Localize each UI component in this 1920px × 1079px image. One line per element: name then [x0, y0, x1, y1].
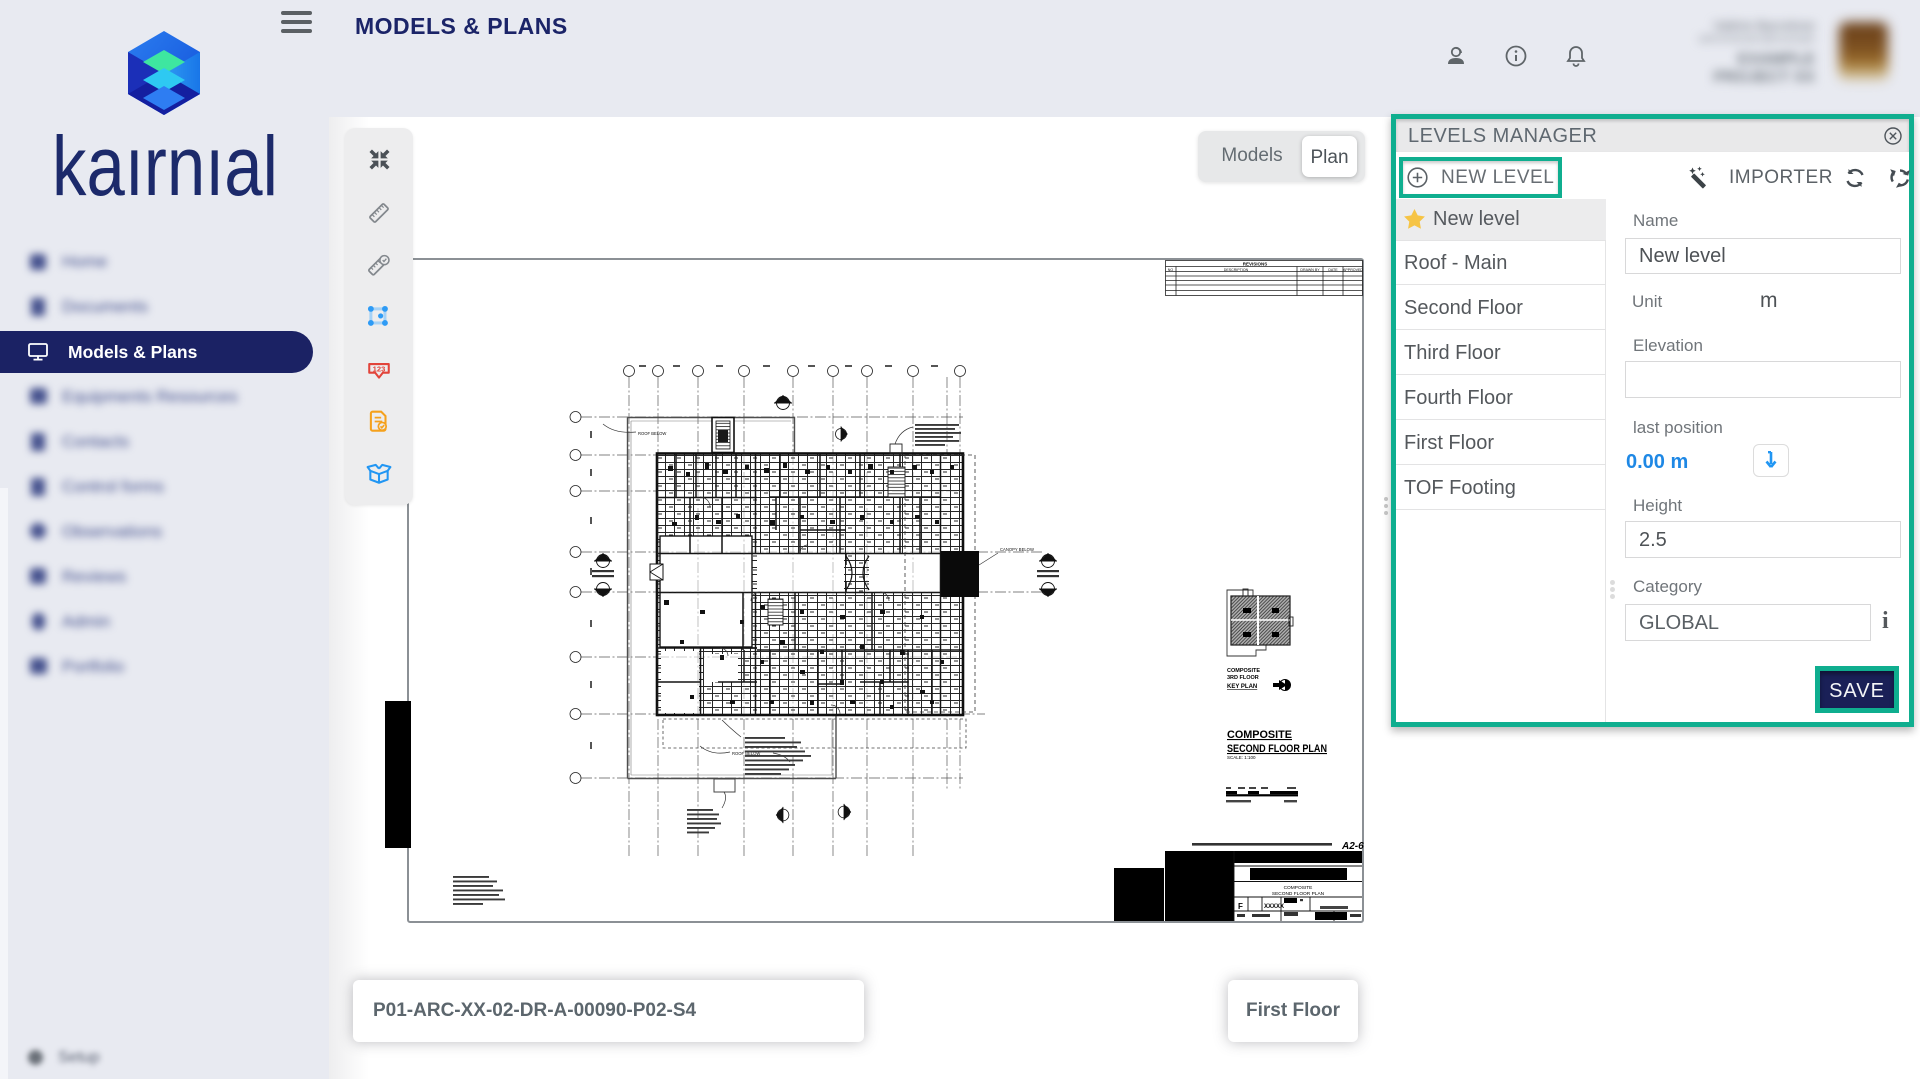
svg-text:XXXXX: XXXXX [1264, 904, 1284, 910]
svg-text:123: 123 [373, 365, 386, 374]
svg-text:SECOND FLOOR PLAN: SECOND FLOOR PLAN [1272, 891, 1325, 897]
svg-text:CANOPY BELOW: CANOPY BELOW [1000, 547, 1034, 552]
svg-text:REVISIONS: REVISIONS [1243, 262, 1268, 267]
svg-text:3RD FLOOR: 3RD FLOOR [1227, 675, 1259, 681]
svg-text:NO: NO [1168, 268, 1174, 272]
svg-text:COMPOSITE: COMPOSITE [1284, 885, 1313, 891]
svg-text:COMPOSITE: COMPOSITE [1227, 668, 1260, 674]
svg-text:SCALE: 1:100: SCALE: 1:100 [1227, 755, 1256, 760]
svg-text:F: F [1238, 902, 1243, 911]
svg-text:KEY PLAN: KEY PLAN [1227, 684, 1257, 690]
svg-text:DESCRIPTION: DESCRIPTION [1224, 268, 1249, 272]
svg-text:COMPOSITE: COMPOSITE [1227, 729, 1292, 741]
svg-text:A2-6: A2-6 [1341, 841, 1364, 852]
svg-text:ROOF BELOW: ROOF BELOW [638, 431, 666, 436]
svg-text:APPROVED: APPROVED [1343, 268, 1363, 272]
svg-text:DATE: DATE [1328, 268, 1338, 272]
svg-text:SECOND FLOOR PLAN: SECOND FLOOR PLAN [1227, 743, 1327, 755]
svg-text:DRAWN BY: DRAWN BY [1300, 268, 1320, 272]
